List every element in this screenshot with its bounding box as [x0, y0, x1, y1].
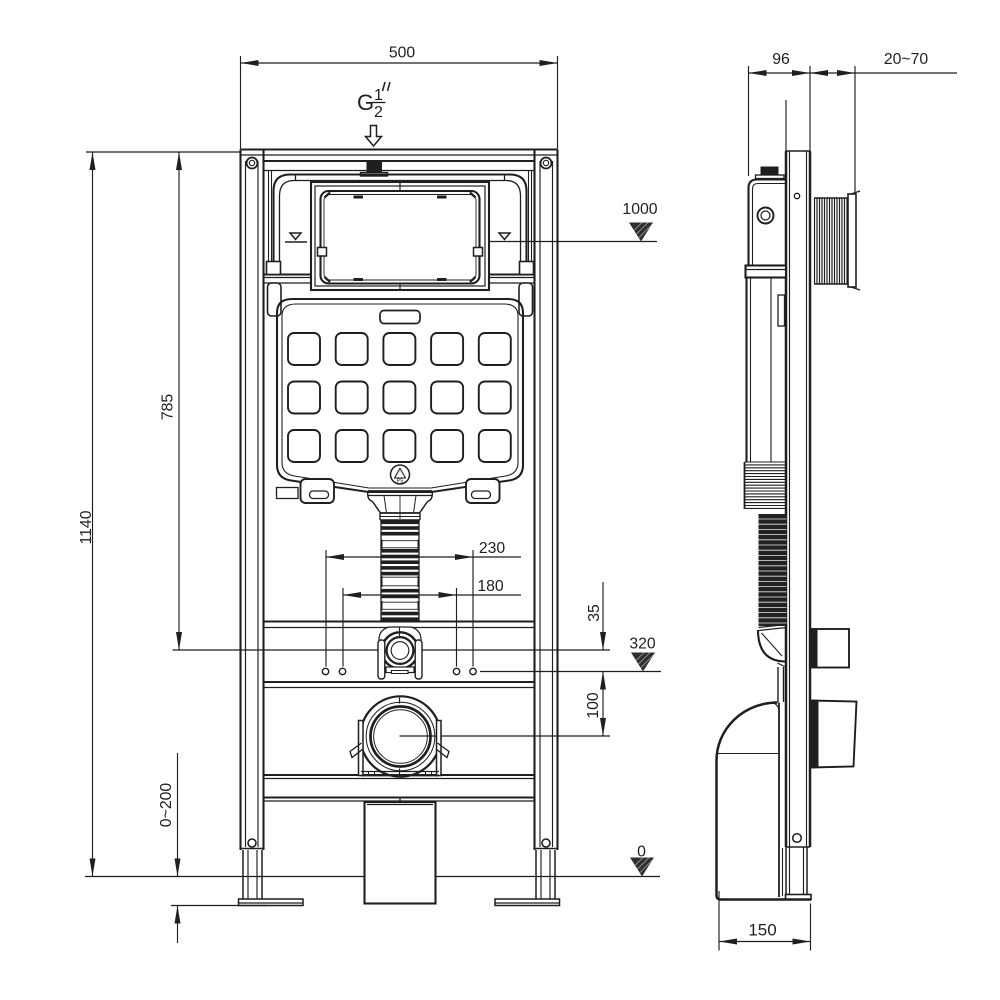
svg-text:230: 230 — [479, 540, 506, 557]
svg-text:1: 1 — [374, 87, 383, 104]
svg-text:100: 100 — [585, 692, 602, 719]
svg-text:150: 150 — [748, 921, 776, 940]
svg-text:96: 96 — [772, 51, 790, 68]
svg-text:0~200: 0~200 — [158, 783, 175, 828]
svg-text:35: 35 — [586, 604, 603, 622]
svg-text:785: 785 — [160, 394, 177, 421]
svg-text:320: 320 — [629, 635, 656, 652]
svg-text:PS: PS — [397, 479, 404, 485]
svg-text:G: G — [357, 90, 374, 115]
svg-text:2: 2 — [374, 104, 383, 121]
svg-text:20~70: 20~70 — [884, 51, 929, 68]
svg-text:0: 0 — [637, 844, 646, 861]
svg-text:500: 500 — [389, 45, 416, 62]
svg-text:180: 180 — [477, 578, 504, 595]
svg-text:1000: 1000 — [622, 201, 657, 218]
svg-text:1140: 1140 — [78, 510, 95, 544]
